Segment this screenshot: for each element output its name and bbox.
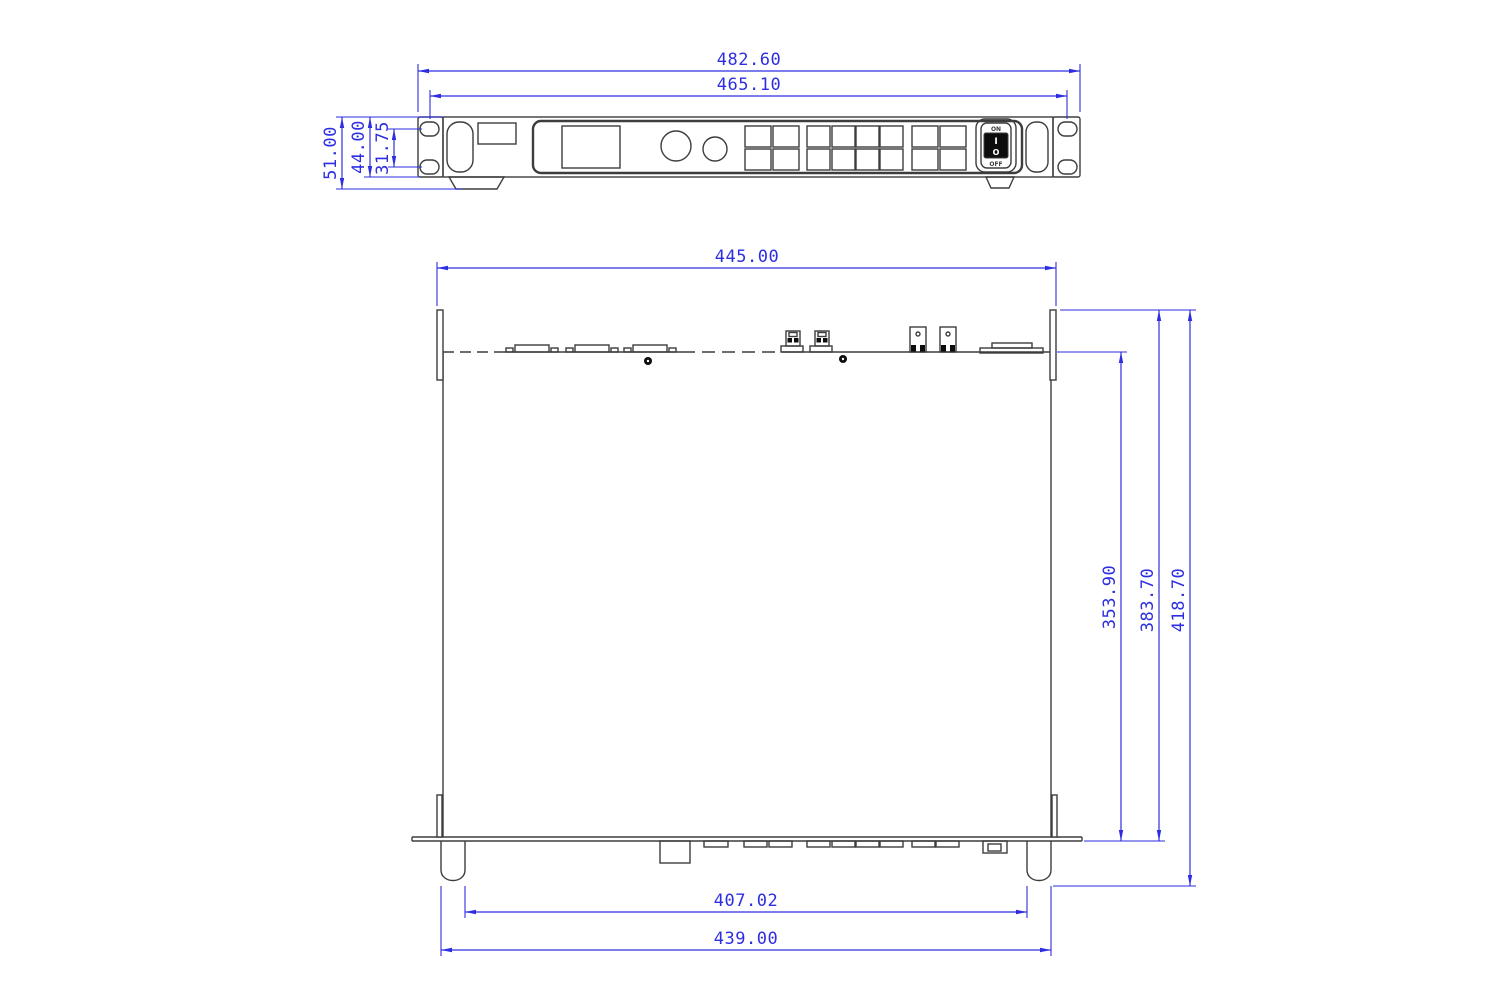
front-handle-left	[447, 122, 473, 172]
video-connector-2	[566, 345, 618, 352]
dim-top-rear-width: 445.00	[715, 247, 779, 267]
dimension-drawing: ON I O OFF	[0, 0, 1500, 1000]
terminal-connector-1	[781, 331, 803, 352]
button-grid-1	[745, 126, 799, 170]
front-ear-plate-right	[1052, 795, 1057, 837]
technical-drawing-page: ON I O OFF	[0, 0, 1500, 1000]
front-handle-right	[1026, 122, 1048, 172]
socket-connector-2	[940, 327, 956, 352]
top-power-switch	[983, 841, 1007, 853]
dim-top-body-depth: 353.90	[1100, 565, 1120, 629]
socket-connector-1	[910, 327, 926, 352]
front-vent-plate	[478, 123, 516, 144]
round-button	[703, 137, 727, 161]
front-foot-left	[449, 177, 504, 189]
front-foot-right	[986, 177, 1014, 188]
dim-front-overall-height: 51.00	[321, 126, 341, 180]
dim-front-mounting-width: 465.10	[717, 75, 781, 95]
power-off-label: OFF	[989, 161, 1002, 168]
dim-top-chassis-width: 439.00	[714, 929, 778, 949]
terminal-connector-2	[810, 331, 832, 352]
dim-top-depth-with-rear: 383.70	[1138, 568, 1158, 632]
chassis-screw	[839, 355, 847, 363]
lcd-screen	[562, 126, 620, 168]
dim-top-feet-inner-width: 407.02	[714, 891, 778, 911]
front-view: ON I O OFF	[418, 117, 1080, 189]
front-rack-ear-right	[1053, 117, 1080, 177]
dim-front-chassis-height: 44.00	[349, 120, 369, 174]
button-grid-3	[912, 126, 966, 170]
top-handle-left	[441, 841, 465, 881]
mounting-hole	[420, 160, 439, 174]
power-switch: ON I O OFF	[976, 119, 1016, 172]
front-edge	[412, 795, 1082, 841]
dimension-annotations: 482.60465.1051.0044.0031.75445.00353.903…	[321, 50, 1196, 956]
rear-bracket-left	[437, 310, 443, 380]
video-connector-1	[506, 345, 558, 352]
rocker-on-symbol: I	[994, 137, 997, 147]
mounting-hole	[420, 122, 439, 136]
chassis-screw	[644, 357, 652, 365]
dim-front-overall-width: 482.60	[717, 50, 781, 70]
top-handle-right	[1027, 841, 1051, 881]
video-connector-3	[624, 345, 676, 352]
dim-top-overall-depth: 418.70	[1169, 568, 1189, 632]
top-button-caps	[704, 841, 959, 847]
mounting-hole	[1058, 160, 1077, 174]
button-grid-2	[807, 126, 903, 170]
rocker-off-symbol: O	[993, 148, 1000, 157]
front-ear-plate-left	[437, 795, 442, 837]
dim-front-hole-spacing: 31.75	[373, 121, 393, 175]
rear-bracket-right	[1050, 310, 1056, 380]
mounting-hole	[1058, 122, 1077, 136]
rotary-knob	[661, 131, 691, 161]
front-rack-ear-left	[418, 117, 443, 177]
top-knob	[660, 841, 690, 863]
top-view	[412, 310, 1082, 881]
power-on-label: ON	[991, 126, 1001, 133]
